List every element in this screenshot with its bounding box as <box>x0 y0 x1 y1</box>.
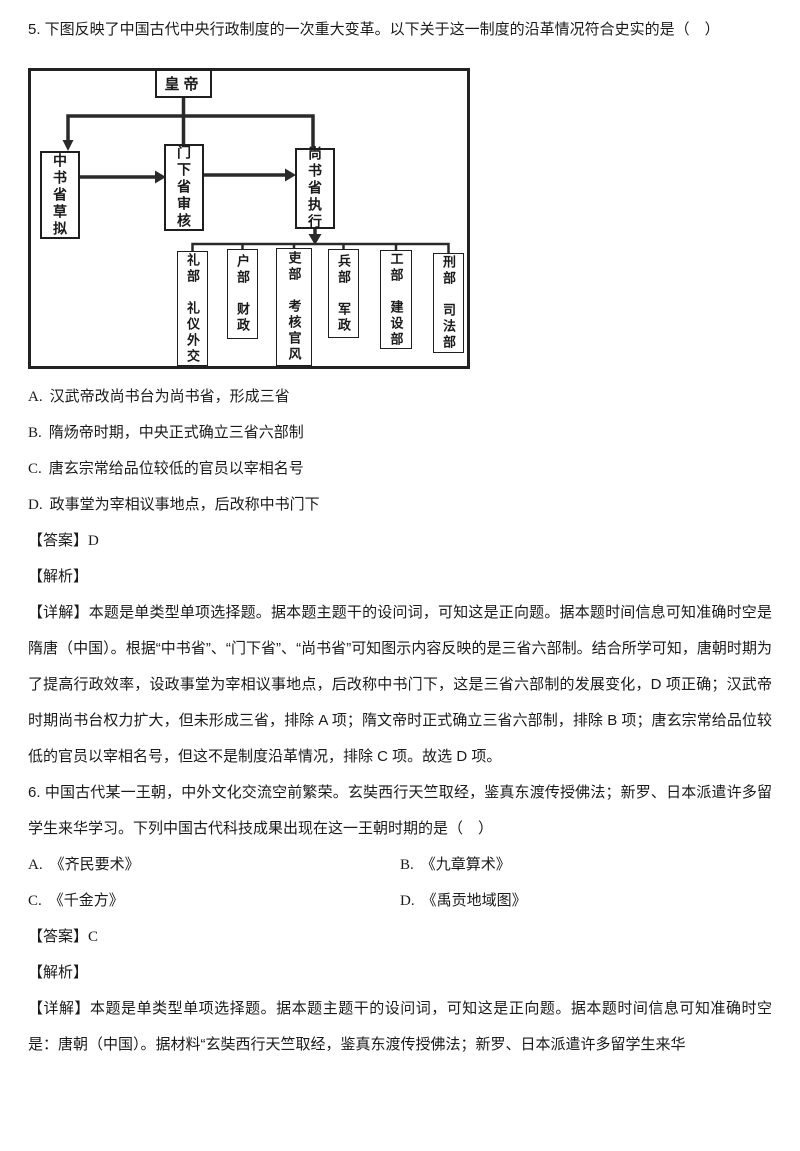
q6-option-d-letter: D. <box>400 893 415 909</box>
org-box-ministry-war: 兵部 军政 <box>328 249 359 338</box>
q6-option-b-letter: B. <box>400 857 414 873</box>
q6-answer-line: 【答案】C <box>28 919 772 955</box>
org-box-ministry-works-label: 工部 建设部 <box>387 252 406 348</box>
q5-option-a: A.汉武帝改尚书台为尚书省，形成三省 <box>28 379 772 415</box>
q6-option-d: D.《禹贡地域图》 <box>400 883 772 919</box>
q5-option-a-text: 汉武帝改尚书台为尚书省，形成三省 <box>50 388 290 405</box>
q6-option-a-text: 《齐民要术》 <box>50 856 140 873</box>
q5-answer-line: 【答案】D <box>28 523 772 559</box>
q5-answer-value: D <box>88 533 99 549</box>
org-box-ministry-revenue: 户部 财政 <box>227 249 258 339</box>
q6-option-c-letter: C. <box>28 893 42 909</box>
org-box-ministry-personnel-label: 吏部 考核官风 <box>285 251 304 363</box>
org-box-emperor-label: 皇帝 <box>164 73 202 94</box>
q5-option-a-letter: A. <box>28 389 43 405</box>
q6-option-c-text: 《千金方》 <box>49 892 124 909</box>
exam-page: 5. 下图反映了中国古代中央行政制度的一次重大变革。以下关于这一制度的沿革情况符… <box>0 0 800 1063</box>
org-box-ministry-rites-label: 礼部 礼仪外交 <box>183 253 202 365</box>
org-box-shangshusheng-label: 尚书省执行 <box>305 146 325 231</box>
org-box-ministry-justice: 刑部 司法部 <box>433 253 464 353</box>
org-box-ministry-works: 工部 建设部 <box>380 250 412 349</box>
q6-answer-value: C <box>88 929 98 945</box>
q6-option-b: B.《九章算术》 <box>400 847 772 883</box>
q6-option-d-text: 《禹贡地域图》 <box>422 892 527 909</box>
q5-option-b-letter: B. <box>28 425 42 441</box>
q6-option-a: A.《齐民要术》 <box>28 847 400 883</box>
q6-analysis-label: 【解析】 <box>28 955 772 991</box>
q5-option-d: D.政事堂为宰相议事地点，后改称中书门下 <box>28 487 772 523</box>
q5-option-b-text: 隋炀帝时期，中央正式确立三省六部制 <box>49 424 304 441</box>
org-box-menxiasheng: 门下省审核 <box>164 144 204 231</box>
q6-answer-label: 【答案】 <box>28 928 88 945</box>
q6-option-c: C.《千金方》 <box>28 883 400 919</box>
q5-option-c-letter: C. <box>28 461 42 477</box>
q6-options: A.《齐民要术》 B.《九章算术》 C.《千金方》 D.《禹贡地域图》 <box>28 847 772 919</box>
q5-option-d-letter: D. <box>28 497 43 513</box>
org-box-ministry-revenue-label: 户部 财政 <box>233 254 252 334</box>
org-box-menxiasheng-label: 门下省审核 <box>174 145 194 230</box>
org-box-shangshusheng: 尚书省执行 <box>295 148 335 229</box>
org-box-zhongshusheng-label: 中书省草拟 <box>50 153 70 238</box>
q5-org-chart: 皇帝 中书省草拟 门下省审核 尚书省执行 礼部 礼仪外交 户部 财政 吏部 考核… <box>28 68 470 369</box>
org-box-ministry-war-label: 兵部 军政 <box>334 254 353 334</box>
q6-option-a-letter: A. <box>28 857 43 873</box>
q6-option-b-text: 《九章算术》 <box>421 856 511 873</box>
q6-stem: 6. 中国古代某一王朝，中外文化交流空前繁荣。玄奘西行天竺取经，鉴真东渡传授佛法… <box>28 775 772 847</box>
q5-stem: 5. 下图反映了中国古代中央行政制度的一次重大变革。以下关于这一制度的沿革情况符… <box>28 12 772 48</box>
q5-option-b: B.隋炀帝时期，中央正式确立三省六部制 <box>28 415 772 451</box>
q5-detail-paragraph: 【详解】本题是单类型单项选择题。据本题主题干的设问词，可知这是正向题。据本题时间… <box>28 595 772 775</box>
org-box-ministry-rites: 礼部 礼仪外交 <box>177 251 208 366</box>
q5-option-d-text: 政事堂为宰相议事地点，后改称中书门下 <box>50 496 320 513</box>
org-box-emperor: 皇帝 <box>155 69 212 98</box>
q5-options: A.汉武帝改尚书台为尚书省，形成三省 B.隋炀帝时期，中央正式确立三省六部制 C… <box>28 379 772 523</box>
q5-option-c: C.唐玄宗常给品位较低的官员以宰相名号 <box>28 451 772 487</box>
q5-analysis-label: 【解析】 <box>28 559 772 595</box>
org-box-ministry-personnel: 吏部 考核官风 <box>276 248 312 366</box>
q5-answer-label: 【答案】 <box>28 532 88 549</box>
q6-detail-paragraph: 【详解】本题是单类型单项选择题。据本题主题干的设问词，可知这是正向题。据本题时间… <box>28 991 772 1063</box>
org-box-zhongshusheng: 中书省草拟 <box>40 151 80 239</box>
q5-option-c-text: 唐玄宗常给品位较低的官员以宰相名号 <box>49 460 304 477</box>
org-box-ministry-justice-label: 刑部 司法部 <box>439 255 458 351</box>
